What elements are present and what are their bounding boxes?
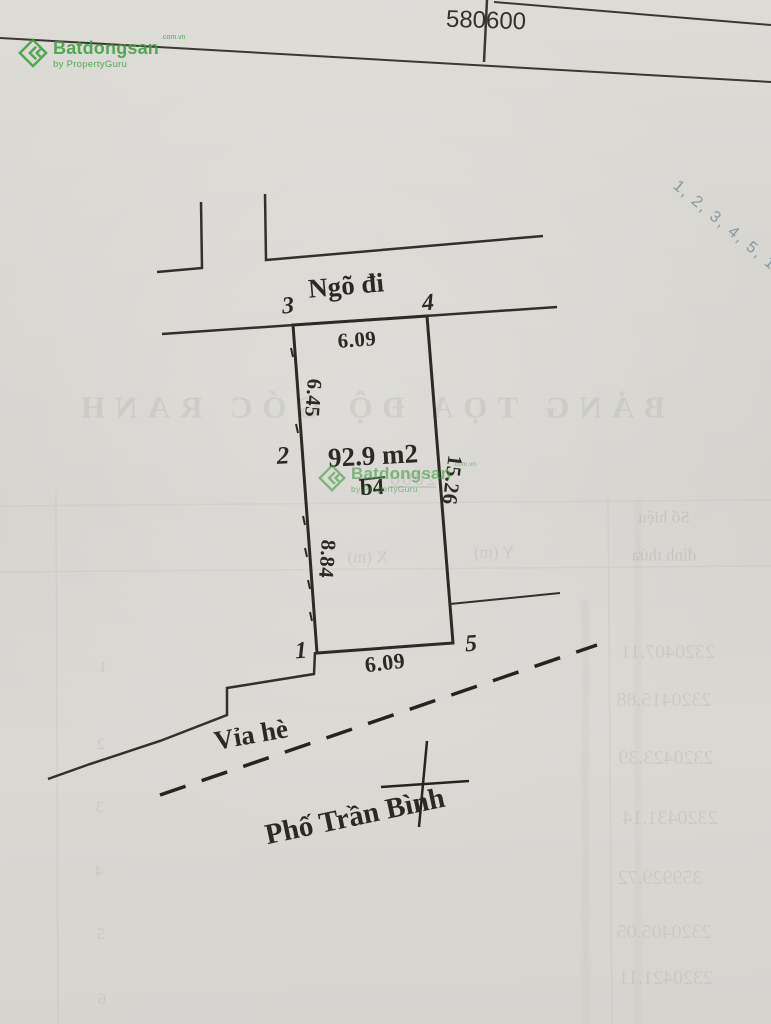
- watermark-brand-text: Batdongsan: [53, 38, 159, 59]
- brand-watermark-top: Batdongsan .com.vn by PropertyGuru: [18, 38, 186, 73]
- vertex-1-label: 1: [294, 639, 308, 664]
- vertex-5-label: 5: [464, 632, 478, 657]
- alley-name-label: Ngõ đi: [307, 269, 385, 303]
- map-edge-line: [494, 2, 771, 25]
- batdongsan-logo-icon: [318, 464, 346, 497]
- brand-watermark-center: Batdongsan .com.vn by PropertyGuru: [318, 464, 476, 497]
- watermark-byline: by PropertyGuru: [53, 59, 186, 70]
- dimension-left-lower-label: 8.84: [315, 539, 339, 579]
- watermark-domain-suffix: .com.vn: [161, 34, 186, 41]
- watermark-byline: by PropertyGuru: [351, 484, 476, 494]
- dimension-bottom-label: 6.09: [364, 650, 407, 677]
- scanned-cadastral-sketch: BẢNG TỌA ĐỘ GÓC RANH 2000 Số hiệu đỉnh t…: [0, 0, 771, 1024]
- watermark-domain-suffix: .com.vn: [453, 461, 476, 468]
- vertex-4-label: 4: [421, 291, 435, 316]
- neighbor-outline-left: [157, 202, 202, 272]
- alley-north-edge: [265, 194, 543, 260]
- batdongsan-logo-icon: [18, 38, 48, 73]
- vertex-2-label: 2: [276, 443, 290, 469]
- grid-coordinate-label: 580600: [446, 8, 527, 35]
- survey-drawing-lines: [0, 0, 771, 1024]
- neighbor-boundary-right: [450, 593, 560, 604]
- dimension-left-upper-label: 6.45: [301, 378, 325, 418]
- dimension-top-label: 6.09: [337, 328, 377, 352]
- watermark-brand-text: Batdongsan: [351, 464, 451, 484]
- vertex-3-label: 3: [281, 294, 295, 319]
